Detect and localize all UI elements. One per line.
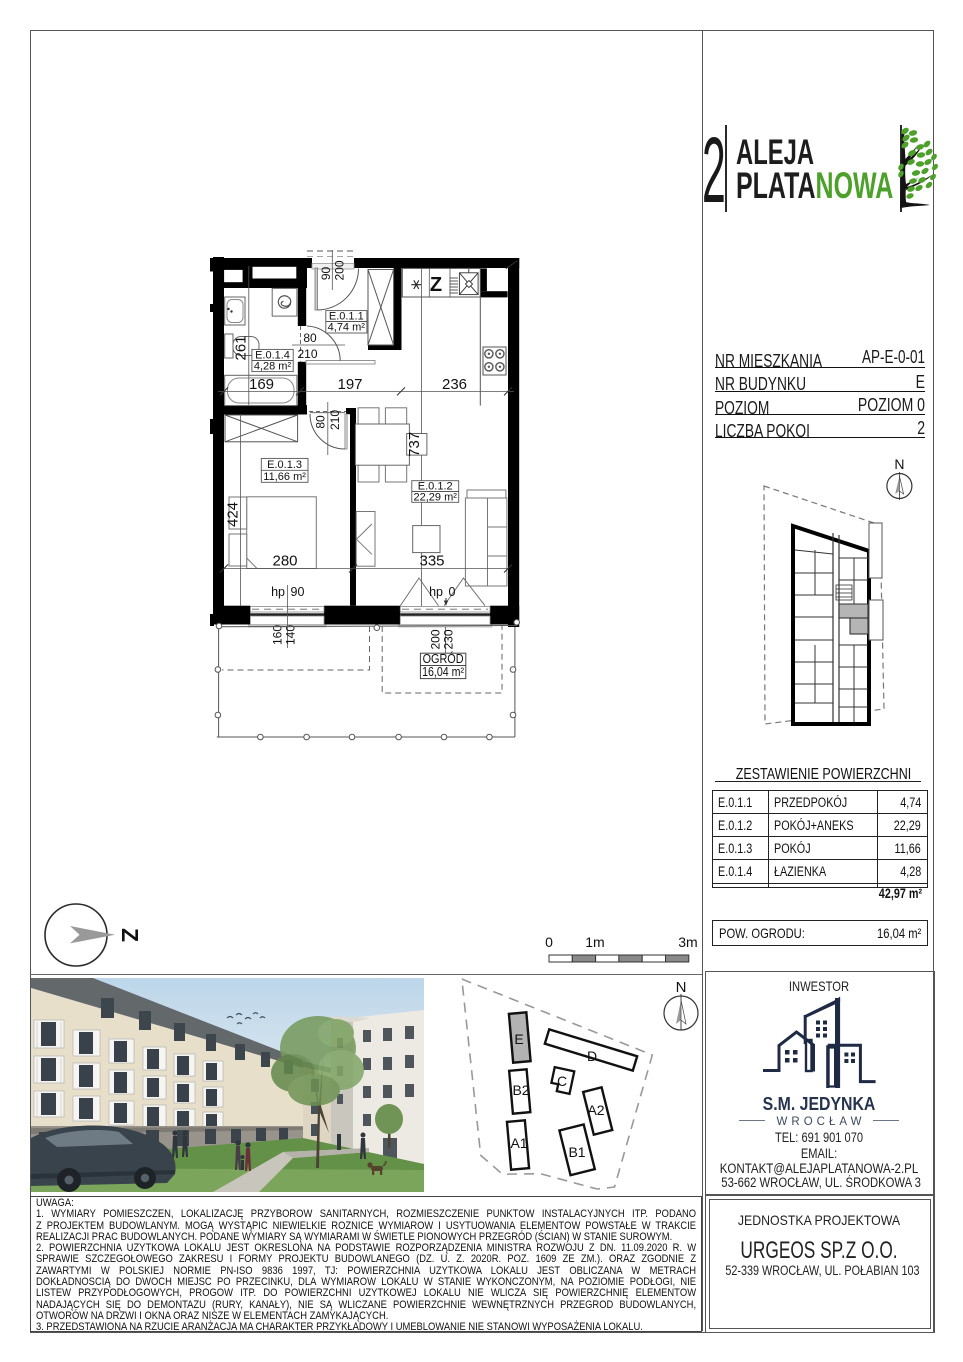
svg-text:335: 335 — [419, 553, 444, 570]
svg-text:737: 737 — [406, 432, 423, 457]
svg-text:E.0.1.3: E.0.1.3 — [267, 459, 302, 471]
svg-text:Z: Z — [430, 274, 442, 296]
svg-text:3m: 3m — [678, 934, 697, 950]
svg-text:hp: hp — [271, 585, 285, 599]
svg-text:4,28 m²: 4,28 m² — [254, 360, 292, 372]
svg-text:16,04 m²: 16,04 m² — [422, 665, 464, 679]
svg-text:280: 280 — [272, 553, 297, 570]
svg-text:C: C — [557, 1073, 567, 1089]
svg-text:A1: A1 — [510, 1135, 527, 1151]
svg-text:210: 210 — [328, 410, 342, 430]
svg-text:hp: hp — [429, 585, 443, 599]
svg-text:D: D — [587, 1048, 597, 1064]
svg-text:169: 169 — [249, 376, 274, 393]
svg-text:E: E — [514, 1031, 523, 1047]
svg-text:1m: 1m — [585, 934, 604, 950]
svg-text:N: N — [894, 456, 904, 472]
svg-text:80: 80 — [303, 331, 317, 345]
svg-text:11,66 m²: 11,66 m² — [263, 471, 306, 483]
svg-text:N: N — [676, 979, 687, 996]
svg-text:210: 210 — [297, 347, 317, 361]
svg-text:200: 200 — [333, 260, 347, 280]
svg-text:197: 197 — [337, 376, 362, 393]
svg-text:424: 424 — [225, 502, 242, 527]
svg-text:A2: A2 — [587, 1102, 604, 1118]
svg-text:230: 230 — [442, 629, 456, 649]
svg-text:22,29 m²: 22,29 m² — [413, 492, 457, 504]
svg-text:B1: B1 — [568, 1144, 585, 1160]
svg-text:200: 200 — [429, 629, 443, 649]
svg-text:B2: B2 — [512, 1082, 529, 1098]
svg-text:261: 261 — [233, 335, 250, 360]
svg-text:E.0.1.2: E.0.1.2 — [418, 480, 453, 492]
svg-text:OGRÓD: OGRÓD — [423, 651, 464, 666]
svg-text:236: 236 — [442, 376, 467, 393]
svg-text:0: 0 — [545, 934, 553, 950]
svg-text:90: 90 — [291, 585, 305, 599]
svg-text:160: 160 — [271, 625, 285, 645]
svg-text:140: 140 — [284, 625, 298, 645]
svg-text:80: 80 — [313, 415, 327, 429]
svg-text:90: 90 — [319, 267, 333, 281]
svg-text:0: 0 — [449, 585, 456, 599]
svg-text:4,74 m²: 4,74 m² — [328, 322, 366, 334]
svg-text:Z: Z — [117, 928, 143, 942]
